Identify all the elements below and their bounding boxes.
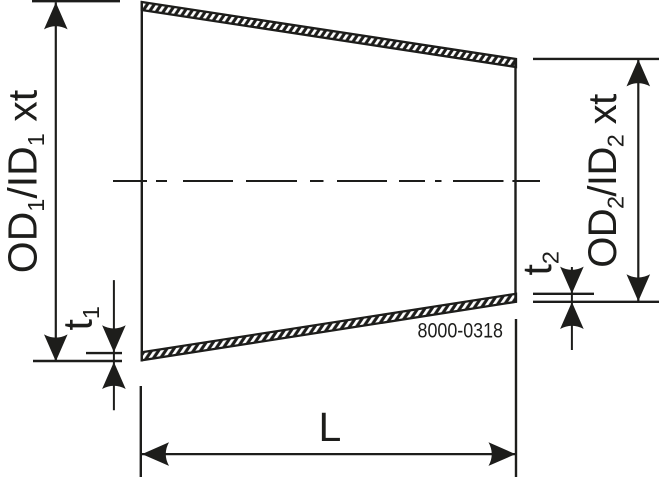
svg-text:OD2/ID2 xt: OD2/ID2 xt (581, 94, 629, 268)
svg-text:8000-0318: 8000-0318 (418, 320, 504, 343)
svg-text:L: L (319, 404, 342, 450)
svg-text:OD1/ID1 xt: OD1/ID1 xt (0, 89, 49, 273)
